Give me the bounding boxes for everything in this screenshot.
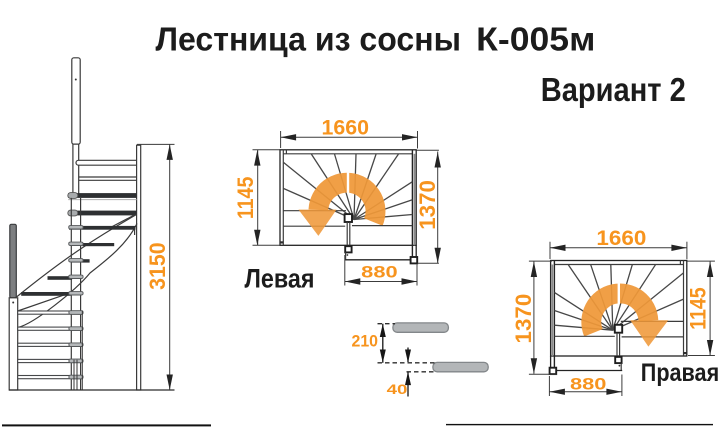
svg-text:1370: 1370 <box>511 294 536 344</box>
svg-text:Лестница из сосны: Лестница из сосны <box>156 20 462 57</box>
svg-text:40: 40 <box>387 382 408 397</box>
svg-text:Левая: Левая <box>245 264 315 294</box>
svg-text:880: 880 <box>361 263 397 281</box>
svg-text:Вариант 2: Вариант 2 <box>541 71 686 108</box>
svg-text:1145: 1145 <box>233 177 258 220</box>
svg-text:1370: 1370 <box>415 180 440 230</box>
svg-text:Правая: Правая <box>641 359 719 387</box>
svg-text:1660: 1660 <box>322 116 370 139</box>
svg-text:3150: 3150 <box>145 242 170 290</box>
svg-text:1145: 1145 <box>685 287 710 330</box>
svg-text:К-005м: К-005м <box>476 20 595 57</box>
svg-text:880: 880 <box>570 376 606 394</box>
svg-text:1660: 1660 <box>596 227 646 250</box>
svg-text:210: 210 <box>352 333 379 351</box>
